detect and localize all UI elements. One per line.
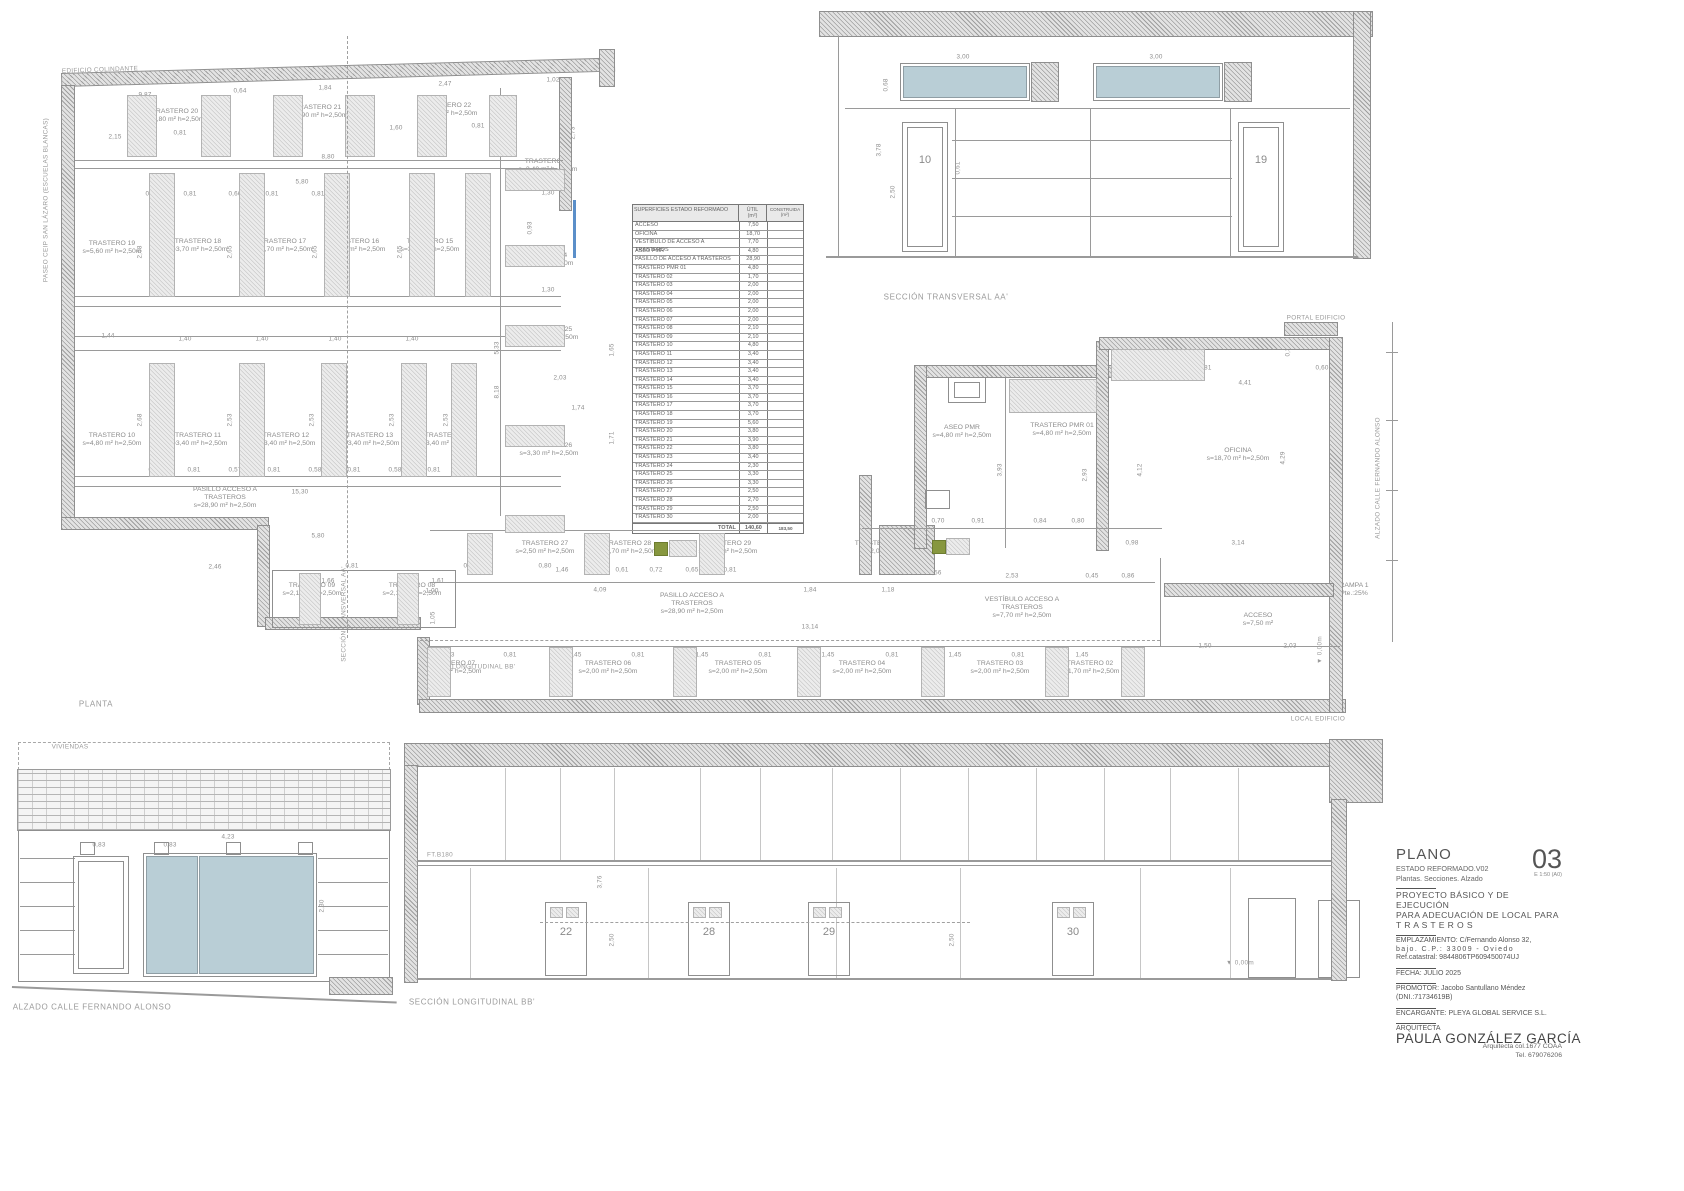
- wall-segment: [62, 518, 268, 529]
- line-light: [560, 768, 561, 860]
- room-label: TRASTERO 11 s=3,40 m² h=2,50m: [169, 432, 228, 448]
- area-table-body: ACCESO7,50OFICINA18,70VESTÍBULO DE ACCES…: [633, 222, 803, 523]
- dimension-label: 1,18: [881, 587, 894, 594]
- area-table-row: TRASTERO 173,70: [633, 402, 803, 411]
- dimension-label: 2,53: [389, 413, 396, 426]
- sheet-state: ESTADO REFORMADO.V02: [1396, 864, 1489, 873]
- glazing: [147, 857, 197, 973]
- area-table-row: TRASTERO 263,30: [633, 480, 803, 489]
- pier-hatch: [240, 364, 264, 476]
- pier-hatch: [670, 541, 696, 556]
- dimension-label: 0,98: [1125, 540, 1138, 547]
- annotation-tag: PORTAL EDIFICIO: [1287, 315, 1346, 322]
- pier-hatch: [700, 534, 724, 574]
- wall-segment: [405, 766, 417, 982]
- dimension-label: 0,81: [183, 191, 196, 198]
- dimension-label: 0,86: [1121, 573, 1134, 580]
- wall-segment: [330, 978, 392, 994]
- dimension-label: 0,84: [1033, 518, 1046, 525]
- area-table-row: TRASTERO 302,00: [633, 514, 803, 523]
- pier-hatch: [585, 534, 609, 574]
- dimension-label: 3,93: [997, 463, 1004, 476]
- area-table-row: TRASTERO 143,40: [633, 377, 803, 386]
- line-light: [1104, 768, 1105, 860]
- dimension-label: 15,30: [292, 489, 309, 496]
- dimension-label: 2,53: [1005, 573, 1018, 580]
- dimension-label: 1,45: [948, 652, 961, 659]
- room-label: ACCESO s=7,50 m²: [1243, 612, 1273, 628]
- line: [1392, 322, 1393, 642]
- area-table-title: SUPERFICIES ESTADO REFORMADO: [633, 205, 739, 221]
- dimension-label: 0,81: [471, 123, 484, 130]
- wall-segment: [1097, 342, 1108, 550]
- dimension-label: 2,03: [553, 375, 566, 382]
- dimension-label: 0,91: [971, 518, 984, 525]
- drawing-caption: PLANTA: [79, 700, 113, 709]
- dimension-label: 4,12: [1137, 463, 1144, 476]
- pier-hatch: [674, 648, 696, 696]
- room-label: OFICINA s=18,70 m² h=2,50m: [1207, 447, 1270, 463]
- line: [952, 216, 1232, 217]
- dimension-label: 1,84: [803, 587, 816, 594]
- dimension-label: 13,14: [802, 624, 819, 631]
- line-light: [832, 768, 833, 860]
- area-table-row: TRASTERO 123,40: [633, 360, 803, 369]
- pier-hatch: [300, 574, 320, 624]
- dimension-label: 0,81: [503, 652, 516, 659]
- dimension-label: 0,70: [931, 518, 944, 525]
- sheet-number: 03: [1532, 846, 1562, 872]
- drawing-caption: SECCIÓN TRANSVERSAL AA': [884, 293, 1009, 302]
- room-label: PASILLO ACCESO A TRASTEROS s=28,90 m² h=…: [660, 592, 724, 616]
- area-table-col-construida: CONSTRUIDA(m²): [767, 205, 803, 221]
- area-table-row: TRASTERO 062,00: [633, 308, 803, 317]
- line: [1386, 490, 1398, 491]
- dimension-label: 0,68: [883, 78, 890, 91]
- room-label: ASEO PMR s=4,80 m² h=2,50m: [933, 424, 992, 440]
- dimension-label: 2,68: [137, 245, 144, 258]
- wall-segment: [405, 744, 1335, 766]
- pier-hatch: [710, 908, 721, 917]
- area-table-row: OFICINA18,70: [633, 231, 803, 240]
- pier-hatch: [398, 574, 418, 624]
- glazing: [904, 67, 1026, 97]
- area-table-row: ACCESO7,50: [633, 222, 803, 231]
- dimension-label: 2,65: [397, 245, 404, 258]
- dimension-label: 4,29: [1280, 451, 1287, 464]
- pier-hatch: [150, 174, 174, 296]
- line: [20, 954, 75, 955]
- room-label: TRASTERO 10 s=4,80 m² h=2,50m: [83, 432, 142, 448]
- pier-hatch: [814, 908, 825, 917]
- line: [75, 350, 561, 351]
- line: [1090, 108, 1091, 256]
- dimension-label: 1,30: [541, 287, 554, 294]
- dimension-label: 0,81: [723, 567, 736, 574]
- dimension-label: 1,02: [546, 77, 559, 84]
- pier-hatch: [402, 364, 426, 476]
- area-table-row: TRASTERO 032,00: [633, 282, 803, 291]
- line: [862, 528, 1162, 529]
- dimension-label: 0,81: [1011, 652, 1024, 659]
- area-table-row: TRASTERO 082,10: [633, 325, 803, 334]
- line: [75, 336, 561, 337]
- pier-hatch: [506, 246, 564, 266]
- dimension-label: 3,14: [1231, 540, 1244, 547]
- wall-segment: [1100, 338, 1337, 349]
- dimension-label: 0,81: [265, 191, 278, 198]
- area-table: SUPERFICIES ESTADO REFORMADO ÚTIL(m²) CO…: [632, 204, 804, 534]
- line-light: [760, 768, 761, 860]
- pier-hatch: [346, 96, 374, 156]
- area-table-row: TRASTERO 195,60: [633, 420, 803, 429]
- area-table-row: TRASTERO 282,70: [633, 497, 803, 506]
- line: [1160, 558, 1161, 646]
- equipment-icon: [655, 543, 667, 555]
- line: [20, 930, 75, 931]
- dimension-label: 2,53: [227, 413, 234, 426]
- pier-hatch: [1122, 648, 1144, 696]
- pier-hatch: [506, 516, 564, 532]
- line-light: [1230, 868, 1231, 978]
- area-table-row: TRASTERO 203,80: [633, 428, 803, 437]
- area-table-row: TRASTERO 163,70: [633, 394, 803, 403]
- dimension-label: 3,00: [956, 54, 969, 61]
- annotation-tag: PASEO CEIP SAN LÁZARO (ESCUELAS BLANCAS): [43, 118, 50, 282]
- pier-hatch: [322, 364, 346, 476]
- dimension-label: 0,80: [1071, 518, 1084, 525]
- area-table-header: SUPERFICIES ESTADO REFORMADO ÚTIL(m²) CO…: [633, 205, 803, 222]
- dimension-label: 1,84: [318, 85, 331, 92]
- annotation-tag: FT.B180: [427, 852, 453, 859]
- pier-hatch: [428, 648, 450, 696]
- outline: [954, 382, 980, 398]
- area-table-row: TRASTERO 253,30: [633, 471, 803, 480]
- annotation-tag: ▼ 0,00m: [1317, 636, 1324, 664]
- dimension-label: 0,45: [1085, 573, 1098, 580]
- dashed-line: [540, 922, 970, 924]
- line: [1005, 378, 1006, 548]
- drawing-sheet: SUPERFICIES ESTADO REFORMADO ÚTIL(m²) CO…: [0, 0, 1684, 1191]
- wall-segment: [420, 700, 1345, 712]
- sheet-contents: Plantas. Secciones. Alzado: [1396, 874, 1489, 883]
- line: [1386, 352, 1398, 353]
- dimension-label: 1,45: [695, 652, 708, 659]
- line: [952, 178, 1232, 179]
- pier-hatch: [128, 96, 156, 156]
- equipment-icon: [933, 541, 945, 553]
- glazing: [1097, 67, 1219, 97]
- line: [318, 882, 388, 883]
- line: [75, 160, 563, 161]
- pier-hatch: [410, 174, 434, 296]
- line: [20, 858, 75, 859]
- pier-hatch: [1010, 380, 1096, 412]
- room-label: TRASTERO 03 s=2,00 m² h=2,50m: [971, 660, 1030, 676]
- area-table-row: ASEO PMR4,80: [633, 248, 803, 257]
- wall-segment: [258, 526, 269, 626]
- pier-hatch: [418, 96, 446, 156]
- dimension-label: 2,50: [949, 933, 956, 946]
- wall-segment: [915, 366, 926, 548]
- pier-hatch: [567, 908, 578, 917]
- outline: [907, 127, 943, 247]
- dimension-label: 2,65: [227, 245, 234, 258]
- dimension-label: 0,81: [758, 652, 771, 659]
- annotation-tag: LOCAL EDIFICIO: [1291, 716, 1345, 723]
- pier-hatch: [798, 648, 820, 696]
- area-table-row: TRASTERO 113,40: [633, 351, 803, 360]
- area-table-row: TRASTERO 021,70: [633, 274, 803, 283]
- dimension-label: 5,80: [295, 179, 308, 186]
- dimension-label: 3,00: [1149, 54, 1162, 61]
- area-table-row: PASILLO DE ACCESO A TRASTEROS28,90: [633, 256, 803, 265]
- wall-segment: [1330, 740, 1382, 802]
- dimension-label: 0,64: [233, 88, 246, 95]
- area-table-row: VESTÍBULO DE ACCESO A TRASTEROS7,70: [633, 239, 803, 248]
- line-light: [1036, 768, 1037, 860]
- pier-hatch: [947, 539, 969, 554]
- room-label: TRASTERO 13 s=3,40 m² h=2,50m: [341, 432, 400, 448]
- pier-hatch: [550, 648, 572, 696]
- line-light: [614, 768, 615, 860]
- pier-hatch: [506, 170, 564, 190]
- room-label: TRASTERO 19 s=5,60 m² h=2,50m: [83, 240, 142, 256]
- line: [75, 306, 561, 307]
- dimension-label: 2,65: [312, 245, 319, 258]
- line: [1386, 560, 1398, 561]
- line: [20, 906, 75, 907]
- dimension-label: 0,81: [631, 652, 644, 659]
- dimension-label: 0,80: [538, 563, 551, 570]
- pier-hatch: [1058, 908, 1069, 917]
- brick-band: [18, 770, 390, 830]
- dimension-label: 2,50: [890, 185, 897, 198]
- wall-segment: [1330, 338, 1342, 712]
- room-label: TRASTERO 02 s=1,70 m² h=2,50m: [1061, 660, 1120, 676]
- wall-segment: [62, 59, 614, 86]
- pier-hatch: [506, 326, 564, 346]
- room-label: TRASTERO 06 s=2,00 m² h=2,50m: [579, 660, 638, 676]
- line: [318, 906, 388, 907]
- pier-hatch: [202, 96, 230, 156]
- area-table-row: TRASTERO 104,80: [633, 342, 803, 351]
- area-table-row: TRASTERO 072,00: [633, 317, 803, 326]
- dimension-label: 2,47: [438, 81, 451, 88]
- line: [430, 530, 760, 531]
- pier-hatch: [922, 648, 944, 696]
- room-label: TRASTERO PMR 01 s=4,80 m² h=2,50m: [1030, 422, 1093, 438]
- wall-segment: [1354, 12, 1370, 258]
- line: [417, 978, 1337, 980]
- dimension-label: 0,81: [267, 467, 280, 474]
- outline: [1243, 127, 1279, 247]
- pier-hatch: [452, 364, 476, 476]
- dimension-label: 0,93: [527, 221, 534, 234]
- area-table-row: TRASTERO 092,10: [633, 334, 803, 343]
- area-table-row: TRASTERO 242,30: [633, 463, 803, 472]
- dimension-label: 0,81: [311, 191, 324, 198]
- dimension-label: 0,81: [187, 467, 200, 474]
- line-light: [1170, 768, 1171, 860]
- wall-segment: [820, 12, 1372, 36]
- room-label: RAMPA 1 Pte.:25%: [1340, 582, 1369, 598]
- pier-hatch: [694, 908, 705, 917]
- dashed-line: [420, 640, 1160, 642]
- outline: [1248, 898, 1296, 978]
- wall-segment: [62, 86, 74, 522]
- room-label: TRASTERO 18 s=3,70 m² h=2,50m: [169, 238, 228, 254]
- dimension-label: 0,60: [1315, 365, 1328, 372]
- line: [318, 858, 388, 859]
- wall-segment: [1332, 800, 1346, 980]
- area-table-row: TRASTERO 133,40: [633, 368, 803, 377]
- area-table-row: TRASTERO 292,50: [633, 506, 803, 515]
- room-label: TRASTERO 27 s=2,50 m² h=2,50m: [516, 540, 575, 556]
- pier-hatch: [325, 174, 349, 296]
- sheet-title: PLANO: [1396, 846, 1489, 863]
- dimension-label: 0,81: [173, 130, 186, 137]
- room-label: VESTÍBULO ACCESO A TRASTEROS s=7,70 m² h…: [985, 596, 1059, 620]
- area-table-row: TRASTERO 272,50: [633, 488, 803, 497]
- pier-hatch: [490, 96, 516, 156]
- dimension-label: 0,58: [308, 467, 321, 474]
- area-table-total-row: TOTAL 140,60 183,50: [633, 523, 803, 533]
- line: [1386, 420, 1398, 421]
- room-label: TRASTERO 05 s=2,00 m² h=2,50m: [709, 660, 768, 676]
- wall-segment: [600, 50, 614, 86]
- wall-segment: [915, 366, 1113, 377]
- dimension-label: 1,71: [609, 431, 616, 444]
- line-light: [1238, 768, 1239, 860]
- line: [417, 860, 1335, 862]
- area-table-row: TRASTERO 223,80: [633, 445, 803, 454]
- dimension-label: 4,41: [1238, 380, 1251, 387]
- dimension-label: 1,46: [555, 567, 568, 574]
- dimension-label: 0,81: [427, 467, 440, 474]
- line: [428, 646, 1340, 647]
- area-table-row: TRASTERO 042,00: [633, 291, 803, 300]
- dimension-label: 0,81: [885, 652, 898, 659]
- architect-phone: Tel. 679076206: [1396, 1052, 1562, 1061]
- line: [955, 108, 956, 256]
- project-title: PROYECTO BÁSICO Y DE EJECUCIÓN PARA ADEC…: [1396, 890, 1562, 930]
- line-light: [1140, 868, 1141, 978]
- pier-hatch: [240, 174, 264, 296]
- dimension-label: 3,78: [876, 143, 883, 156]
- line: [75, 296, 561, 297]
- glazing: [200, 857, 313, 973]
- line-light: [968, 768, 969, 860]
- dimension-label: 0,81: [347, 467, 360, 474]
- project-date: FECHA: JULIO 2025: [1396, 970, 1562, 979]
- dimension-label: 0,58: [388, 467, 401, 474]
- line: [417, 865, 1335, 866]
- drawing-caption: ALZADO CALLE FERNANDO ALONSO: [13, 1003, 172, 1012]
- dimension-label: 2,46: [208, 564, 221, 571]
- dimension-label: 4,09: [593, 587, 606, 594]
- architect-name: PAULA GONZÁLEZ GARCÍA: [1396, 1035, 1562, 1044]
- area-table-col-util: ÚTIL(m²): [739, 205, 767, 221]
- line-light: [700, 768, 701, 860]
- outline: [925, 490, 950, 509]
- pier-hatch: [150, 364, 174, 476]
- outline: [80, 842, 95, 855]
- area-table-row: TRASTERO 153,70: [633, 385, 803, 394]
- wall-segment: [1165, 584, 1333, 596]
- dimension-label: 1,60: [389, 125, 402, 132]
- sheet-scale: E 1:50 (A0): [1532, 872, 1562, 878]
- pier-hatch: [274, 96, 302, 156]
- section-marker-blue: [573, 200, 576, 258]
- dimension-label: 2,15: [108, 134, 121, 141]
- project-client: ENCARGANTE: PLEYA GLOBAL SERVICE S.L.: [1396, 1010, 1562, 1019]
- architect-block: ARQUITECTA PAULA GONZÁLEZ GARCÍA Arquite…: [1396, 1025, 1562, 1060]
- area-table-row: TRASTERO PMR 014,80: [633, 265, 803, 274]
- line: [826, 256, 1358, 258]
- dimension-label: 5,80: [311, 533, 324, 540]
- project-location: EMPLAZAMIENTO: C/Fernando Alonso 32, baj…: [1396, 937, 1562, 963]
- pier-hatch: [551, 908, 562, 917]
- pier-hatch: [468, 534, 492, 574]
- dimension-label: 2,50: [609, 933, 616, 946]
- dimension-label: 2,68: [137, 413, 144, 426]
- pier-hatch: [506, 426, 564, 446]
- area-table-row: TRASTERO 233,40: [633, 454, 803, 463]
- pier-hatch: [466, 174, 490, 296]
- line: [75, 476, 561, 477]
- dimension-label: 0,61: [615, 567, 628, 574]
- line: [838, 36, 839, 256]
- wall-segment: [1032, 63, 1058, 101]
- dimension-label: 0,72: [649, 567, 662, 574]
- outline: [78, 861, 124, 969]
- line: [952, 140, 1232, 141]
- annotation-tag: ALZADO CALLE FERNANDO ALONSO: [1375, 417, 1382, 539]
- room-label: TRASTERO 12 s=3,40 m² h=2,50m: [257, 432, 316, 448]
- area-table-row: TRASTERO 213,90: [633, 437, 803, 446]
- pier-hatch: [1112, 350, 1204, 380]
- line-light: [470, 868, 471, 978]
- line: [1230, 108, 1231, 256]
- line: [75, 168, 557, 169]
- dimension-label: 3,76: [597, 875, 604, 888]
- line: [318, 954, 388, 955]
- dimension-label: 2,93: [1082, 468, 1089, 481]
- area-table-row: TRASTERO 052,00: [633, 299, 803, 308]
- line: [318, 930, 388, 931]
- dimension-label: 1,45: [1075, 652, 1088, 659]
- line: [430, 582, 1155, 583]
- wall-segment: [560, 78, 571, 210]
- line-light: [505, 768, 506, 860]
- dimension-label: 1,65: [609, 343, 616, 356]
- pier-hatch: [1074, 908, 1085, 917]
- project-promoter: PROMOTOR: Jacobo Santullano Méndez (DNI.…: [1396, 985, 1562, 1002]
- line: [845, 108, 1350, 109]
- pier-hatch: [1046, 648, 1068, 696]
- dimension-label: 2,53: [309, 413, 316, 426]
- pier-hatch: [830, 908, 841, 917]
- dashed-line: [347, 36, 349, 638]
- dimension-label: 2,53: [443, 413, 450, 426]
- dimension-label: 1,45: [821, 652, 834, 659]
- dimension-label: 0,65: [685, 567, 698, 574]
- area-table-row: TRASTERO 183,70: [633, 411, 803, 420]
- room-label: TRASTERO 04 s=2,00 m² h=2,50m: [833, 660, 892, 676]
- title-block: PLANO ESTADO REFORMADO.V02 Plantas. Secc…: [1396, 846, 1562, 1060]
- room-label: PASILLO ACCESO A TRASTEROS s=28,90 m² h=…: [193, 486, 257, 510]
